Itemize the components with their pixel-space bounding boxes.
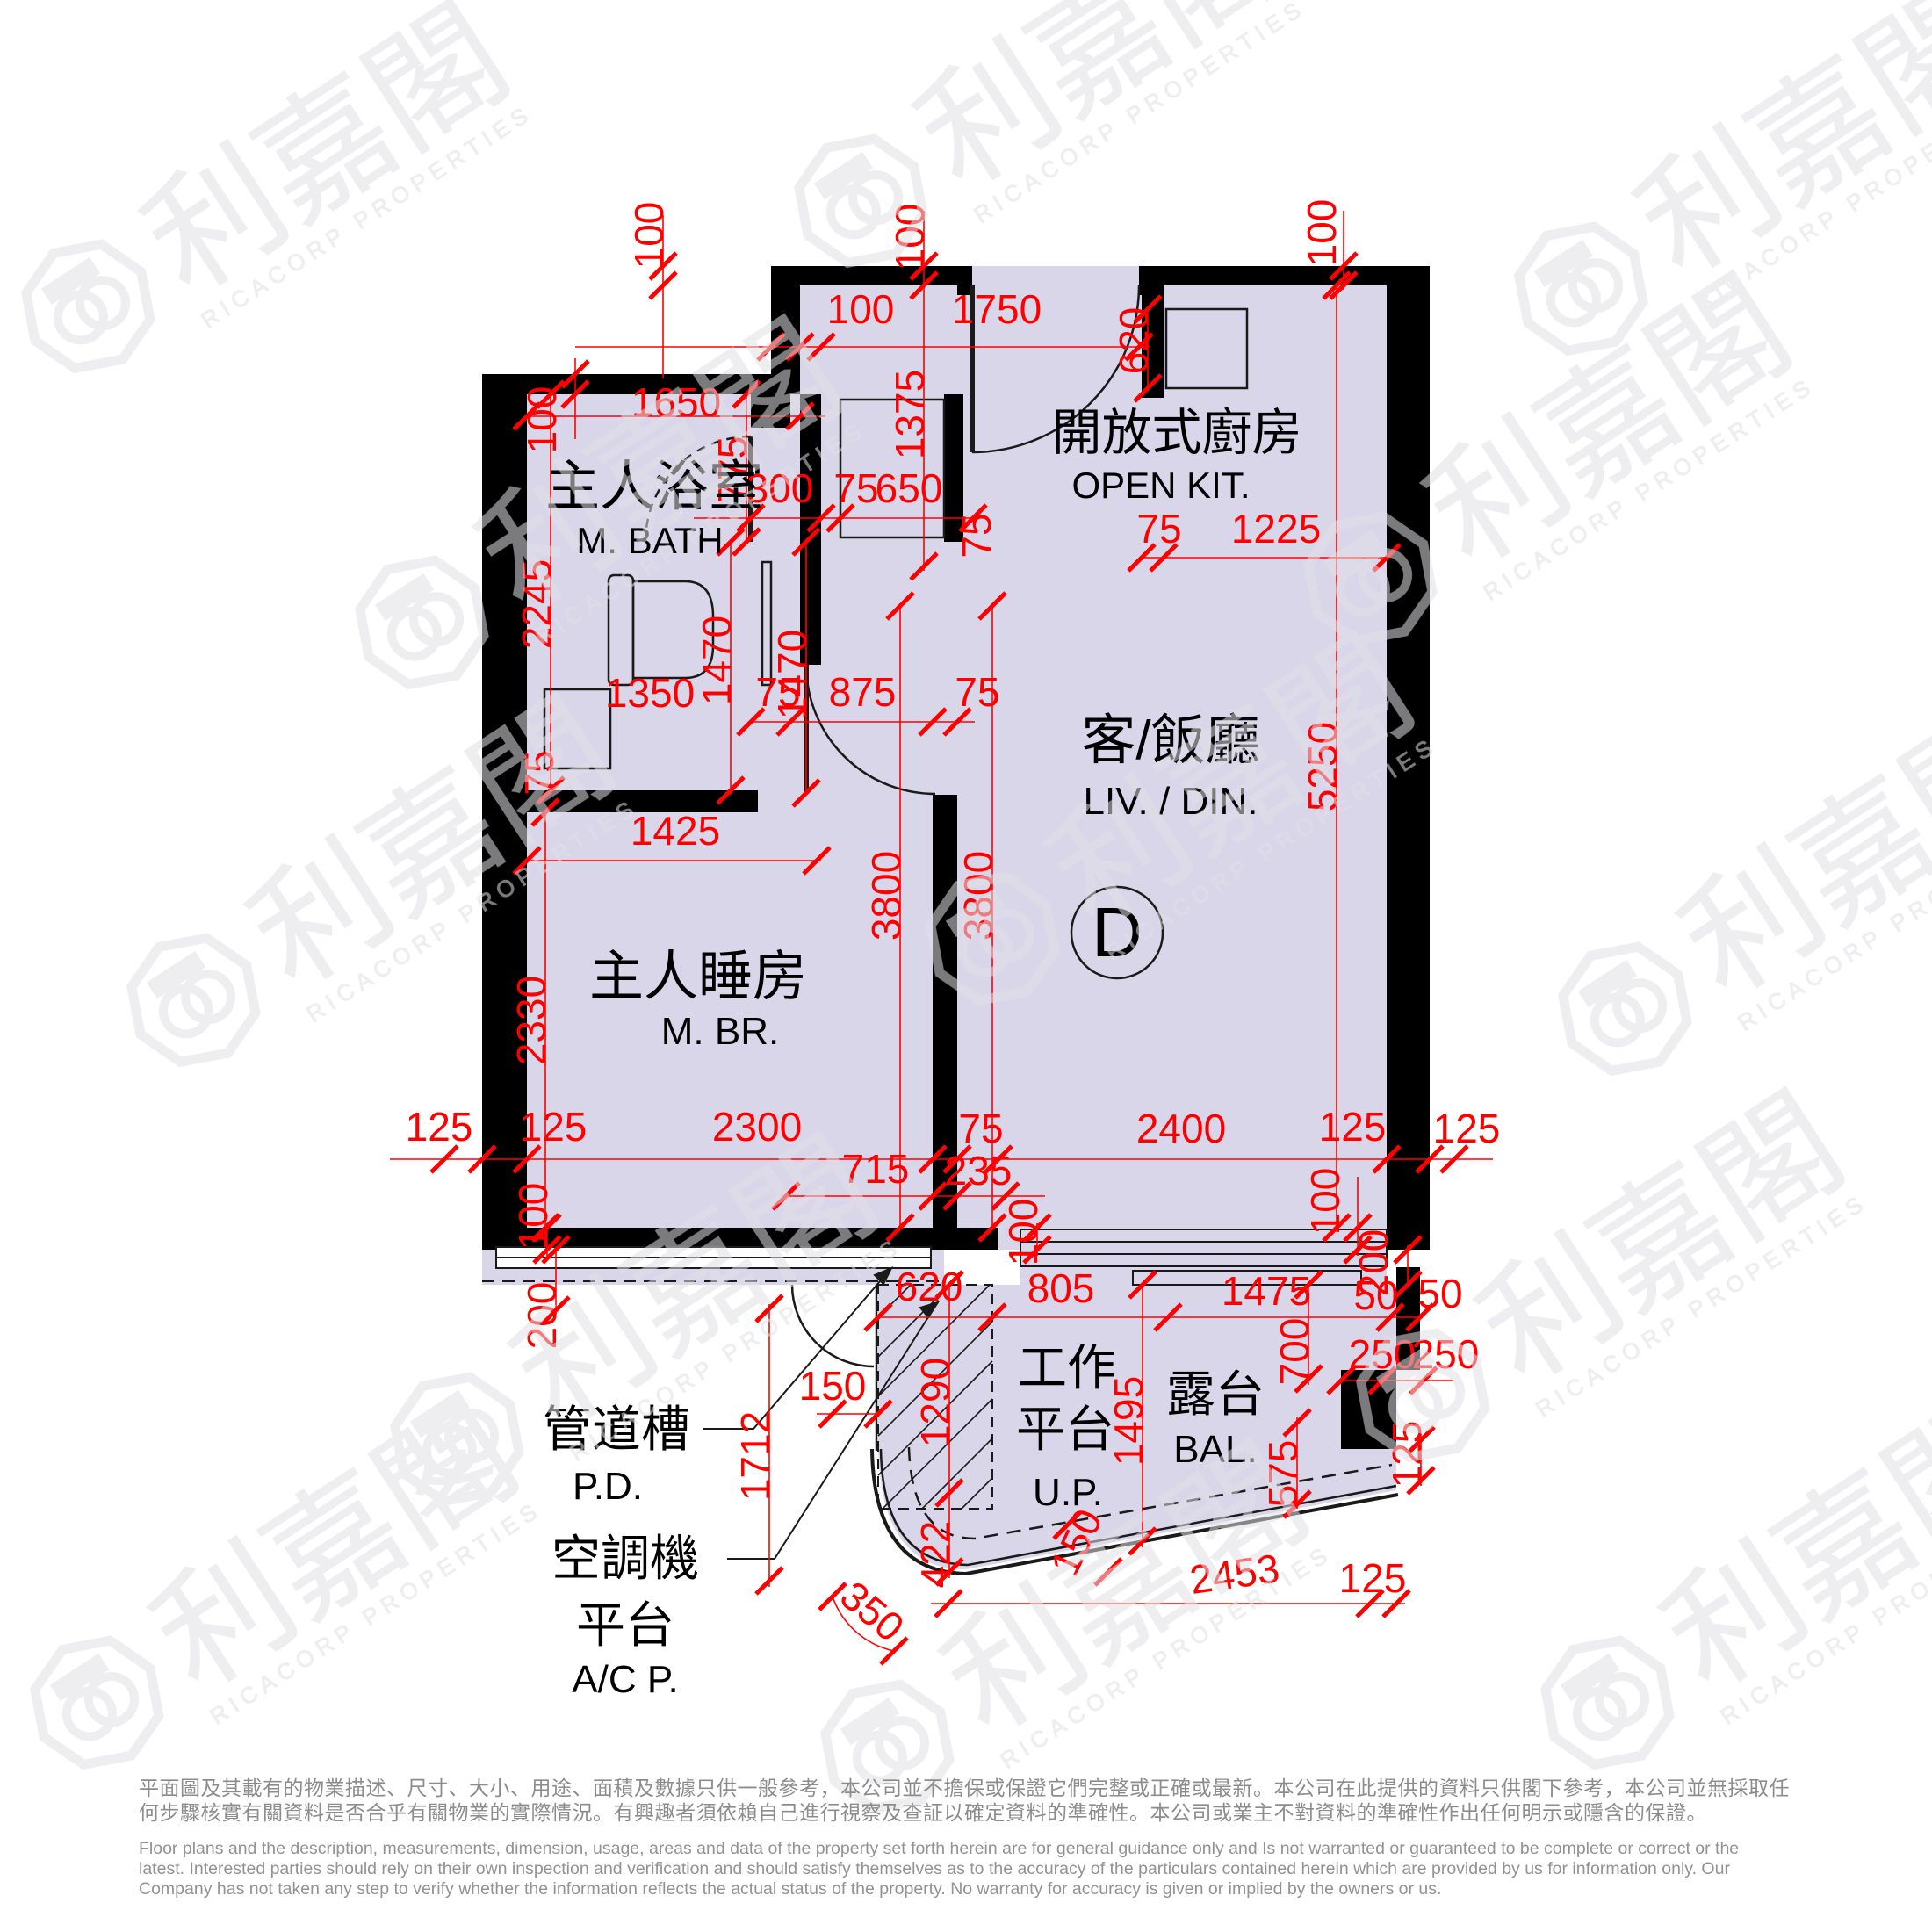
dimension-label: 1225 bbox=[1231, 506, 1321, 551]
room-label: U.P. bbox=[1033, 1471, 1103, 1514]
dimension-label: 805 bbox=[1027, 1265, 1095, 1311]
dimension-label: 100 bbox=[626, 202, 672, 270]
dimension-label: 75 bbox=[1136, 506, 1181, 551]
disclaimer-zh-line1: 平面圖及其載有的物業描述、尺寸、大小、用途、面積及數據只供一般參考，本公司並不擔… bbox=[139, 1776, 1803, 1800]
dimension-label: 3800 bbox=[863, 851, 909, 941]
dimension-label: 150 bbox=[799, 1363, 867, 1409]
floor-plan: 1001001001001750620165010013757753007565… bbox=[0, 0, 1932, 1932]
dimension-label: 2330 bbox=[508, 976, 554, 1065]
disclaimer-en-line3: Company has not taken any step to verify… bbox=[139, 1879, 1803, 1900]
dimension-label: 1475 bbox=[1222, 1268, 1311, 1314]
dimension-label: 650 bbox=[876, 465, 943, 511]
dimension-label: 2400 bbox=[1136, 1106, 1226, 1151]
dimension-label: 100 bbox=[1000, 1199, 1046, 1266]
dimension-label: 1470 bbox=[694, 616, 739, 705]
dimension-label: 100 bbox=[1302, 1168, 1348, 1236]
watermark-tile: 利嘉閣RICACORP PROPERTIES bbox=[0, 0, 542, 416]
dimension-label: 620 bbox=[1111, 307, 1157, 375]
dimension-label: 422 bbox=[912, 1521, 958, 1589]
dimension-label: 125 bbox=[1319, 1104, 1387, 1150]
watermark-tile: 利嘉閣RICACORP PROPERTIES bbox=[1531, 682, 1932, 1118]
dimension-label: 75 bbox=[958, 1106, 1003, 1151]
dimension-label: 1350 bbox=[605, 670, 695, 716]
dimension-label: 1750 bbox=[952, 286, 1042, 332]
dimension-label: 100 bbox=[1299, 199, 1344, 267]
watermark-tile: 利嘉閣RICACORP PROPERTIES bbox=[767, 0, 1315, 311]
dimension-label: 75 bbox=[955, 669, 999, 715]
dimension-label: 125 bbox=[1433, 1106, 1501, 1151]
room-label: OPEN KIT. bbox=[1071, 465, 1250, 506]
room-label: 平台 bbox=[576, 1597, 674, 1653]
watermark-tile: 利嘉閣RICACORP PROPERTIES bbox=[1513, 1376, 1932, 1812]
disclaimer-english: Floor plans and the description, measure… bbox=[139, 1839, 1803, 1900]
dimension-label: 100 bbox=[510, 1183, 556, 1251]
disclaimer-en-line1: Floor plans and the description, measure… bbox=[139, 1839, 1803, 1859]
watermark-characters: 利嘉閣 bbox=[1657, 682, 1932, 1021]
page: { "document_type": "floor-plan", "unit_l… bbox=[0, 0, 1932, 1932]
dimension-label: 50 bbox=[1417, 1271, 1462, 1316]
dimension-label: 50 bbox=[1353, 1272, 1398, 1318]
room-label: 開放式廚房 bbox=[1052, 405, 1302, 461]
dimension-label: 125 bbox=[406, 1104, 473, 1150]
dimension-label: 875 bbox=[829, 669, 897, 715]
disclaimer-chinese: 平面圖及其載有的物業描述、尺寸、大小、用途、面積及數據只供一般參考，本公司並不擔… bbox=[139, 1776, 1803, 1825]
dimension-label: 125 bbox=[520, 1104, 588, 1150]
room-label: 主人睡房 bbox=[589, 947, 807, 1007]
dimension-label: 75 bbox=[755, 669, 800, 715]
room-label: 工作 bbox=[1018, 1340, 1116, 1395]
room-label: P.D. bbox=[573, 1465, 643, 1508]
wall-top-a bbox=[800, 266, 972, 285]
room-label: A/C P. bbox=[572, 1658, 678, 1701]
dimension-label: 75 bbox=[954, 513, 999, 558]
dimension-label: 100 bbox=[827, 286, 895, 332]
disclaimer-zh-line2: 何步驟核實有關資料是否合乎有關物業的實際情況。有興趣者須依賴自己進行視察及查証以… bbox=[139, 1800, 1803, 1825]
dimension-label: 1425 bbox=[631, 808, 720, 854]
room-label: 露台 bbox=[1166, 1366, 1265, 1422]
dimension-label: 235 bbox=[945, 1148, 1013, 1193]
room-label: 空調機 bbox=[551, 1531, 699, 1586]
dimension-label: 1712 bbox=[732, 1411, 778, 1501]
room-label: M. BR. bbox=[661, 1010, 779, 1053]
disclaimer-en-line2: latest. Interested parties should rely o… bbox=[139, 1859, 1803, 1879]
dimension-label: 1290 bbox=[912, 1358, 958, 1447]
room-label: 平台 bbox=[1016, 1402, 1114, 1457]
dimension-label: 700 bbox=[1272, 1318, 1317, 1386]
dimension-label: 125 bbox=[1339, 1555, 1407, 1601]
dimension-label: 620 bbox=[896, 1264, 963, 1309]
dimension-label: 1375 bbox=[887, 370, 933, 459]
dimension-label: 75 bbox=[833, 465, 878, 511]
disclaimer: 平面圖及其載有的物業描述、尺寸、大小、用途、面積及數據只供一般參考，本公司並不擔… bbox=[139, 1776, 1803, 1900]
